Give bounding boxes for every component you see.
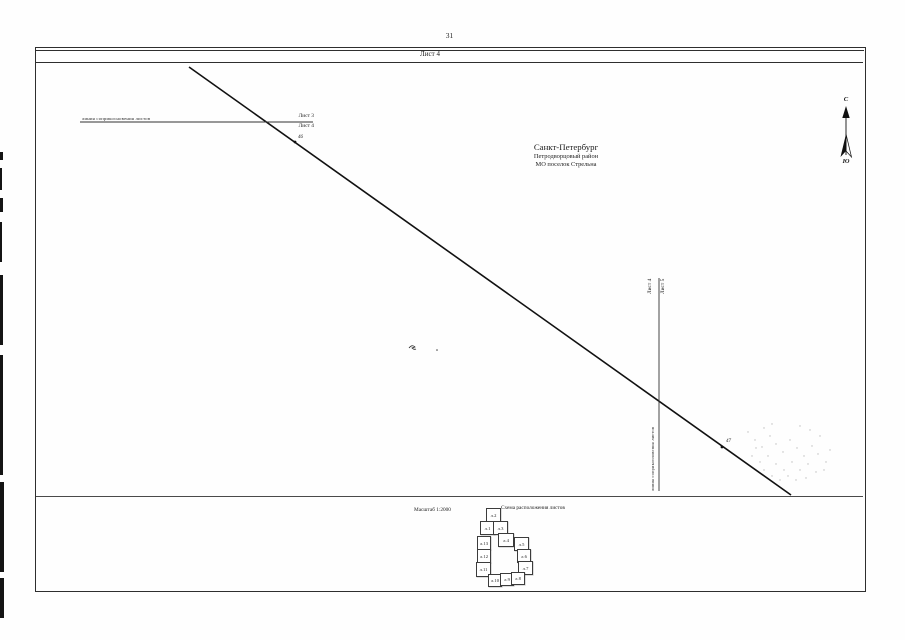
scheme-sheet-box: л.8 <box>511 572 525 585</box>
boundary-point-label: 46 <box>298 135 303 140</box>
scanned-map-page: 31 Лист 4 Санкт-Петербург Петродворцовый… <box>0 0 905 640</box>
scan-binding-artifact <box>0 198 3 212</box>
scan-binding-artifact <box>0 578 4 618</box>
scheme-sheet-box: л.12 <box>477 549 491 563</box>
page-number: 31 <box>35 31 864 40</box>
scan-binding-artifact <box>0 275 3 345</box>
scheme-sheet-box: л.4 <box>498 533 514 547</box>
compass-south-label: Ю <box>839 158 853 165</box>
join-line-top-sheet-below: Лист 4 <box>281 123 314 129</box>
scale-note: Масштаб 1:2000 <box>414 507 451 513</box>
scan-binding-artifact <box>0 355 3 475</box>
boundary-point-label: 47 <box>726 439 731 444</box>
header-divider <box>36 62 863 63</box>
join-line-top-sheet-above: Лист 3 <box>281 113 314 119</box>
location-city: Санкт-Петербург <box>495 142 637 153</box>
scan-binding-artifact <box>0 152 3 160</box>
footer-divider <box>36 496 863 497</box>
scan-binding-artifact <box>0 482 4 572</box>
scan-binding-artifact <box>0 168 2 190</box>
location-block: Санкт-Петербург Петродворцовый район МО … <box>495 142 637 169</box>
compass-north-label: С <box>839 96 853 103</box>
location-municipality: МО поселок Стрельна <box>495 161 637 169</box>
scan-binding-artifact <box>0 222 2 262</box>
sheet-title: Лист 4 <box>380 50 480 58</box>
join-line-right-sheet-left: Лист 4 <box>647 271 653 294</box>
join-line-right-caption: линия соприкосновения листов <box>650 417 655 491</box>
join-line-right-sheet-right: Лист 5 <box>660 271 666 294</box>
scheme-sheet-box: л.2 <box>486 508 501 522</box>
join-line-top-caption: линия соприкосновения листов <box>82 116 150 121</box>
location-district: Петродворцовый район <box>495 153 637 161</box>
sheet-scheme-title: Схема расположения листов <box>501 505 565 511</box>
scheme-sheet-box: л.13 <box>477 536 491 550</box>
